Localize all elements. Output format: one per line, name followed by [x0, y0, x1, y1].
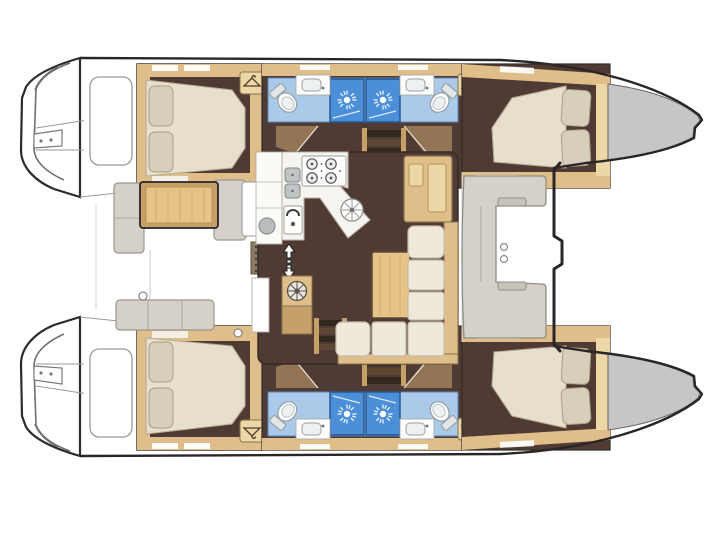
nav-desk — [404, 156, 452, 222]
stove-burner-icon — [302, 156, 346, 186]
round-hatch — [259, 218, 275, 234]
deck-fitting — [234, 329, 242, 337]
catamaran-floor-plan — [0, 0, 720, 540]
crossbeam-line — [554, 163, 562, 351]
oven-icon — [284, 206, 302, 234]
aft-cockpit — [96, 180, 277, 337]
aft-bench — [116, 300, 214, 330]
galley-cabinet — [282, 306, 312, 334]
cupholder-icon — [501, 244, 508, 251]
cockpit-table — [140, 182, 218, 228]
salon — [252, 152, 458, 364]
cockpit-sliding-door — [252, 278, 269, 332]
round-sink-icon — [341, 199, 363, 221]
cupholder-icon — [501, 256, 508, 263]
deck-fitting — [139, 292, 147, 300]
lounge-step — [498, 198, 526, 206]
dinette-table — [372, 252, 410, 318]
forward-cockpit — [462, 163, 562, 351]
lounge-step — [498, 282, 526, 290]
floor-plan-page — [0, 0, 720, 540]
